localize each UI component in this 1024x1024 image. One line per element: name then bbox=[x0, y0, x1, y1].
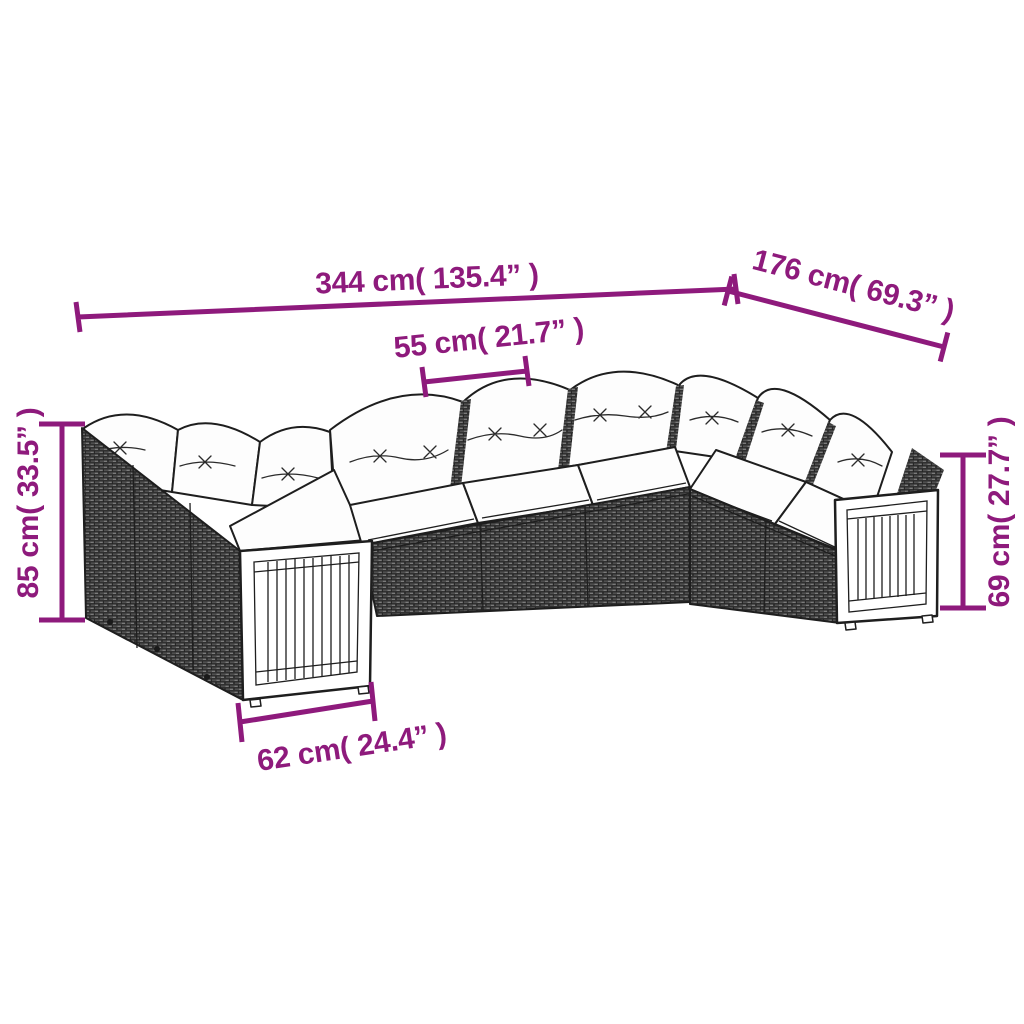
dimension-back-height-label: 85 cm( 33.5” ) bbox=[12, 408, 45, 599]
dimension-side-depth: 176 cm( 69.3” ) bbox=[724, 243, 958, 361]
dimension-total-width: 344 cm( 135.4” ) bbox=[76, 258, 738, 332]
wood-panel-left bbox=[240, 541, 372, 707]
dimension-total-width-label: 344 cm( 135.4” ) bbox=[315, 258, 540, 300]
sofa-dimension-illustration: 344 cm( 135.4” ) 176 cm( 69.3” ) 55 cm( … bbox=[0, 0, 1024, 1024]
dimension-seat-width-label: 55 cm( 21.7” ) bbox=[392, 312, 585, 365]
sofa-illustration bbox=[82, 372, 944, 707]
wood-panel-right bbox=[835, 490, 938, 630]
dimension-arm-depth-label: 62 cm( 24.4” ) bbox=[255, 717, 449, 778]
dimension-arm-height: 69 cm( 27.7” ) bbox=[940, 417, 1016, 608]
dimension-arm-height-label: 69 cm( 27.7” ) bbox=[983, 417, 1016, 608]
dimension-back-height: 85 cm( 33.5” ) bbox=[12, 408, 85, 620]
product-dimension-diagram: 344 cm( 135.4” ) 176 cm( 69.3” ) 55 cm( … bbox=[0, 0, 1024, 1024]
dimension-side-depth-label: 176 cm( 69.3” ) bbox=[749, 243, 958, 327]
